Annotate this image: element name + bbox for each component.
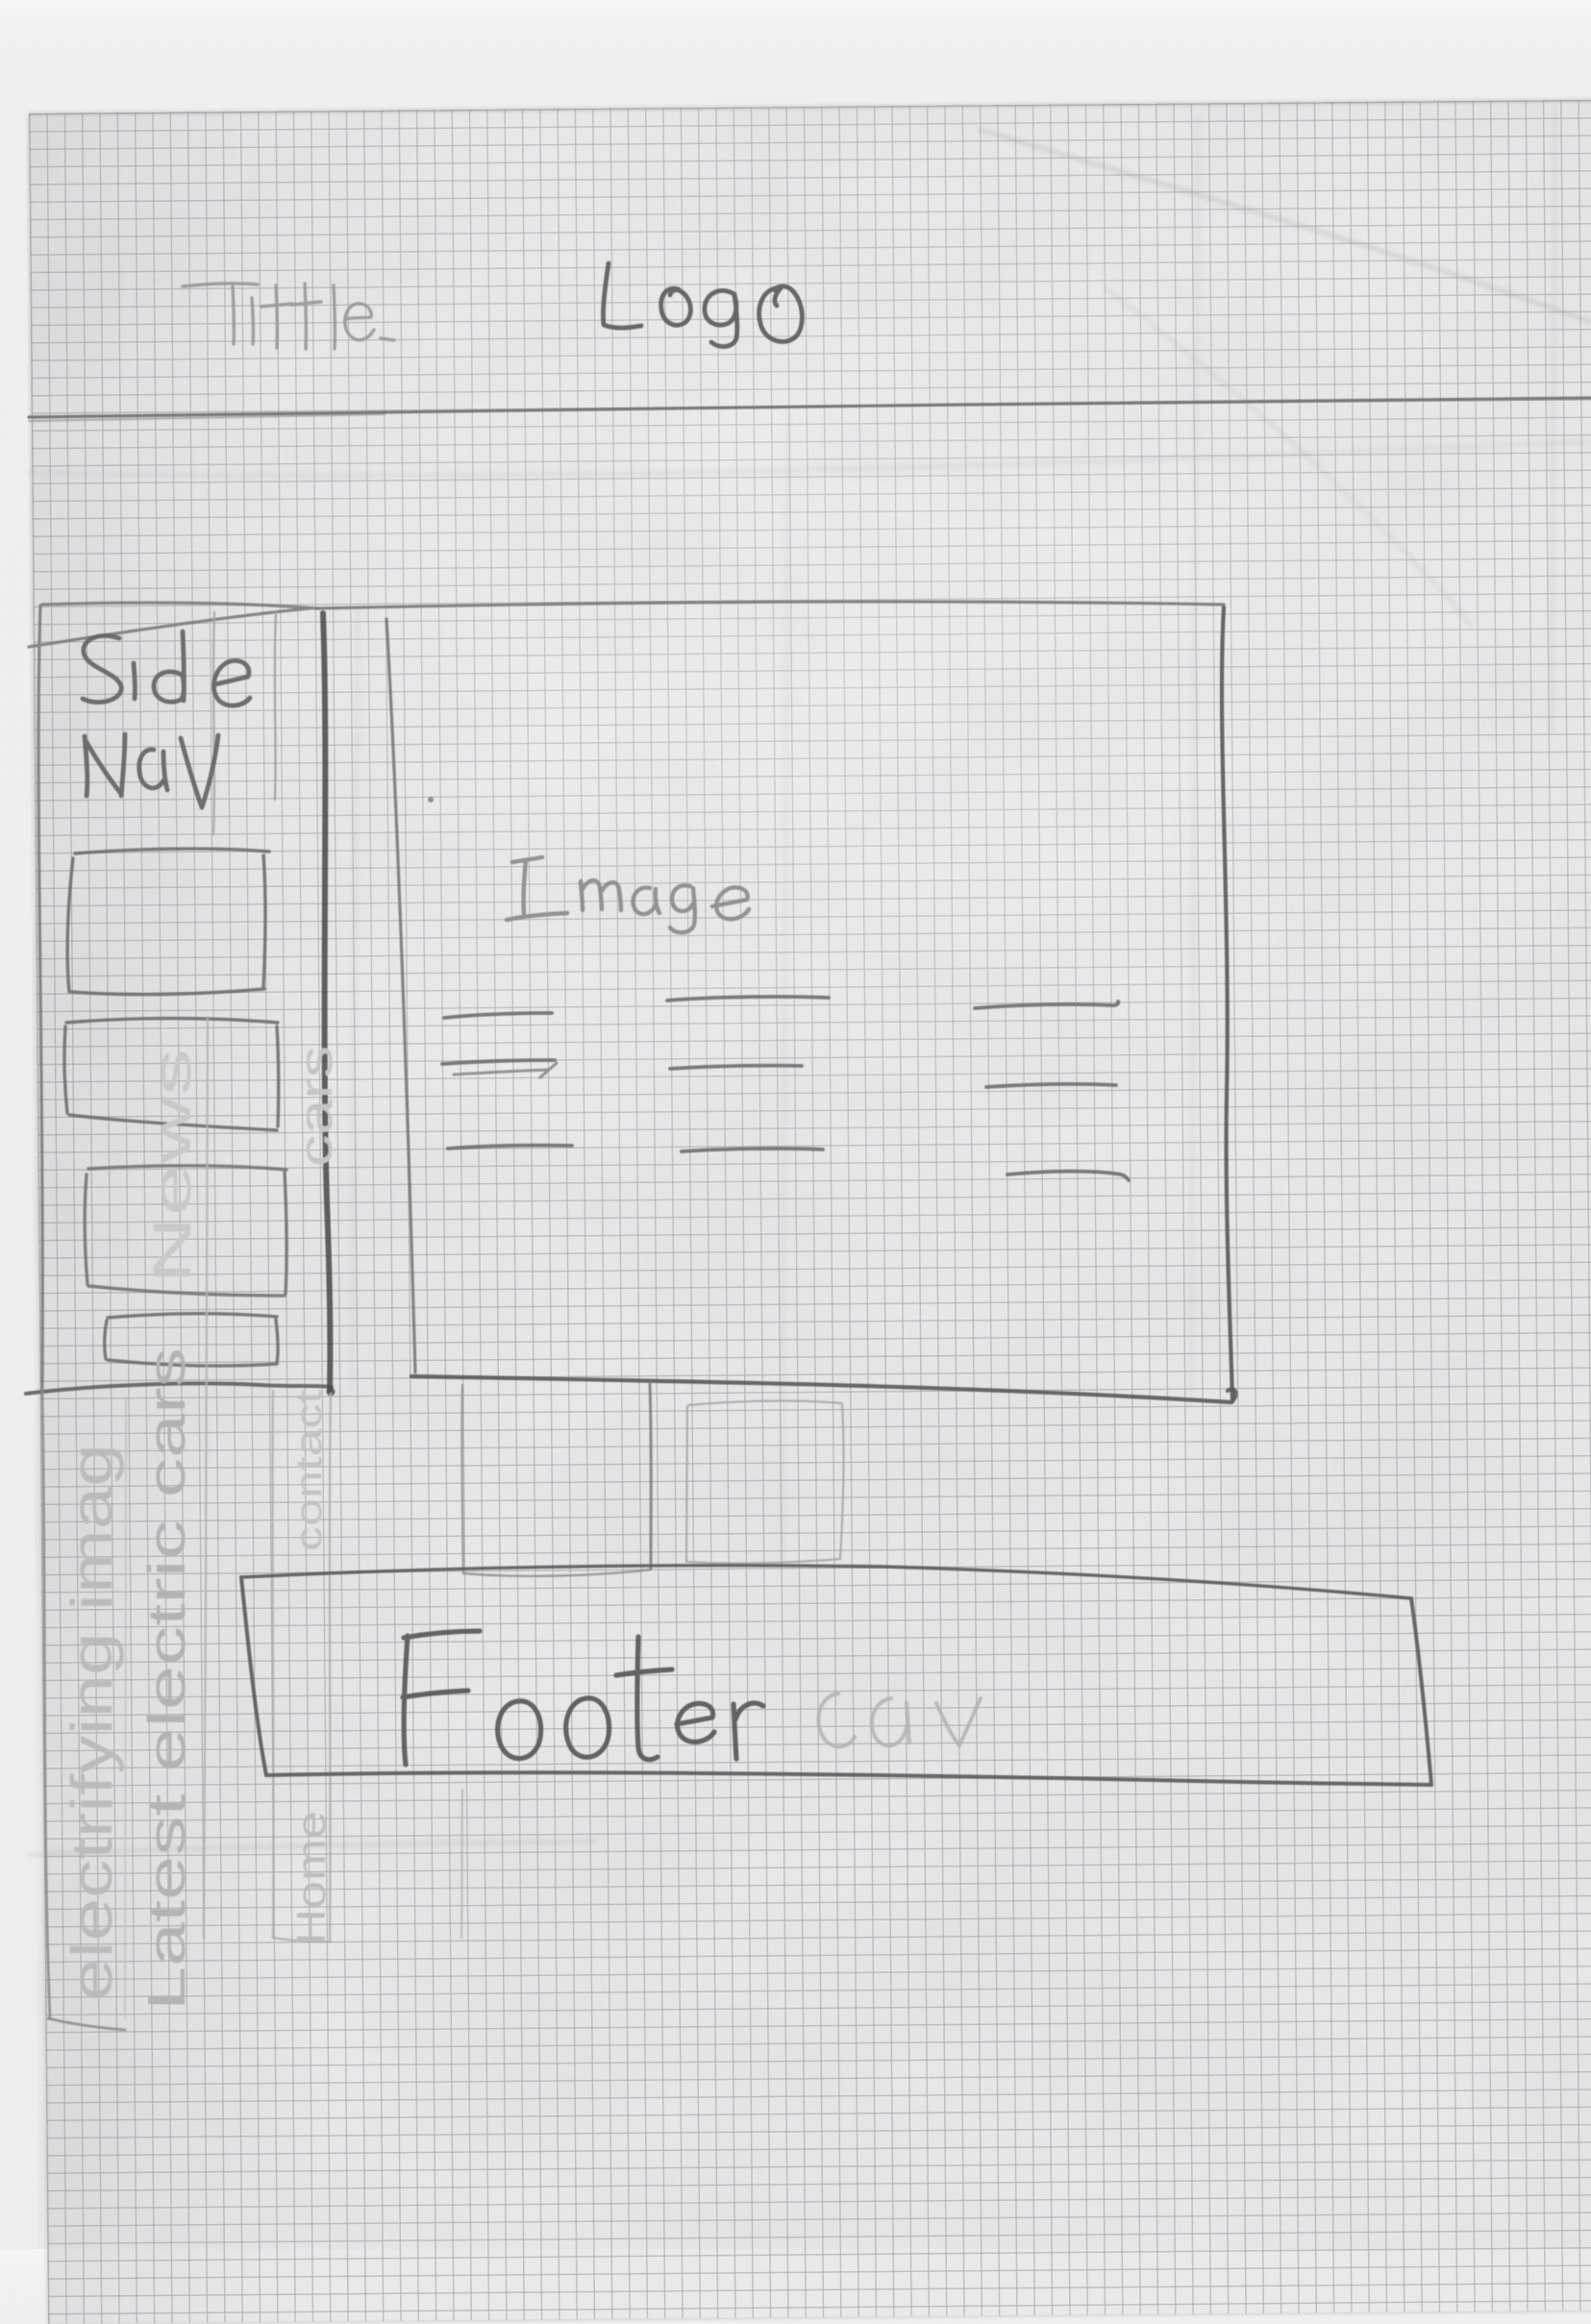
svg-text:Latest electric cars: Latest electric cars — [137, 1347, 196, 2011]
svg-text:electrifying imag: electrifying imag — [60, 1444, 124, 2001]
svg-text:contact: contact — [289, 1389, 330, 1551]
svg-text:Home: Home — [288, 1811, 334, 1945]
svg-text:cars: cars — [291, 1046, 342, 1167]
svg-text:News: News — [141, 1049, 202, 1284]
